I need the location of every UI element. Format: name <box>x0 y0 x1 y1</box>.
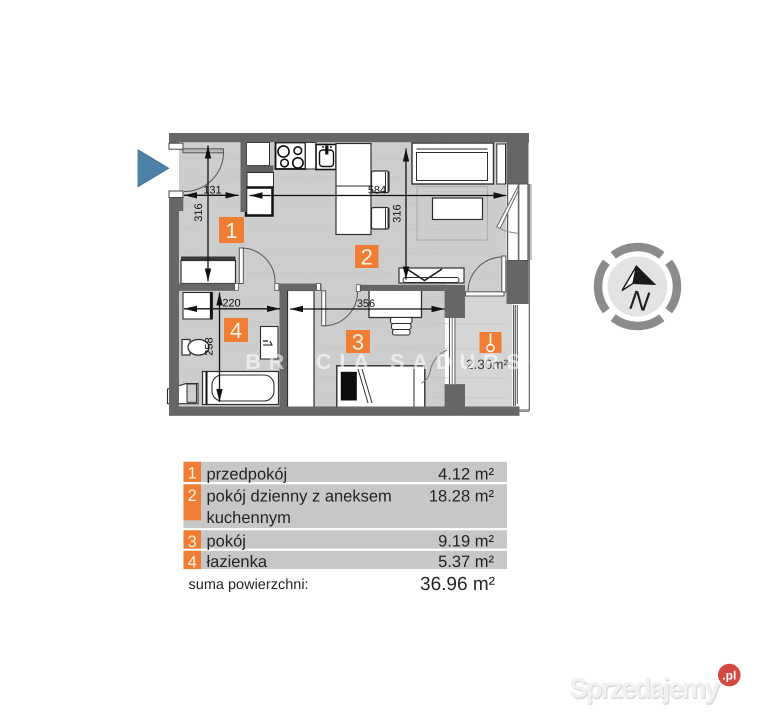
svg-text:1: 1 <box>225 218 237 243</box>
svg-text:5.37 m²: 5.37 m² <box>438 553 494 571</box>
svg-text:pokój: pokój <box>207 532 246 550</box>
svg-text:.pl: .pl <box>722 669 736 683</box>
svg-text:316: 316 <box>193 203 205 221</box>
svg-text:316: 316 <box>392 204 404 222</box>
svg-text:pokój dzienny z aneksem: pokój dzienny z aneksem <box>207 487 392 505</box>
svg-text:258: 258 <box>204 337 216 355</box>
svg-text:4: 4 <box>230 318 242 343</box>
svg-text:łazienka: łazienka <box>207 553 268 571</box>
svg-text:4.12 m²: 4.12 m² <box>438 465 494 483</box>
svg-text:18.28 m²: 18.28 m² <box>429 487 495 505</box>
svg-text:2: 2 <box>188 487 197 505</box>
svg-text:suma powierzchni:: suma powierzchni: <box>189 577 309 593</box>
svg-text:2: 2 <box>361 244 373 269</box>
svg-text:przedpokój: przedpokój <box>207 465 288 483</box>
svg-text:36.96 m²: 36.96 m² <box>420 574 495 595</box>
svg-text:356: 356 <box>357 298 375 310</box>
svg-text:Sprzedajemy: Sprzedajemy <box>569 673 720 704</box>
svg-text:1: 1 <box>188 464 197 482</box>
svg-text:3: 3 <box>188 533 197 551</box>
svg-text:4: 4 <box>188 553 197 571</box>
svg-text:9.19 m²: 9.19 m² <box>438 532 494 550</box>
svg-text:kuchennym: kuchennym <box>207 509 291 527</box>
svg-text:BRACIA SADURSCY: BRACIA SADURSCY <box>245 350 574 374</box>
svg-text:131: 131 <box>203 185 221 197</box>
svg-text:584: 584 <box>368 185 386 197</box>
svg-text:220: 220 <box>222 298 240 310</box>
